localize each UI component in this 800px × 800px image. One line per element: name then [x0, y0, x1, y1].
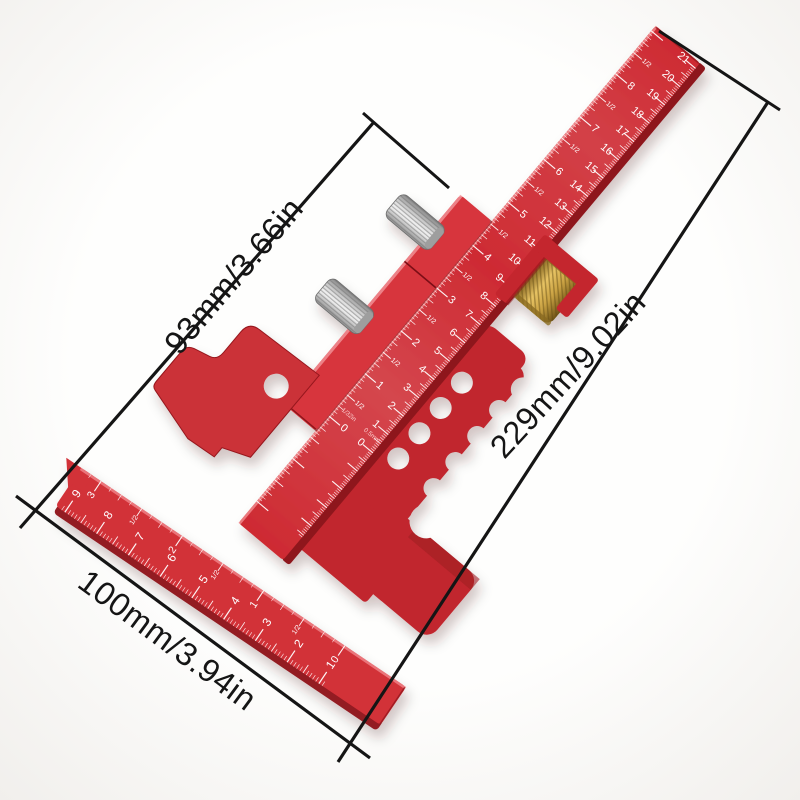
- dimension-tick-93mm: [363, 113, 449, 188]
- product-photo-marking-gauge: 123456789 01/211/221/23 01/211/221/231/2…: [0, 0, 800, 800]
- dimension-label-93mm: 93mm/3.66in: [157, 191, 310, 361]
